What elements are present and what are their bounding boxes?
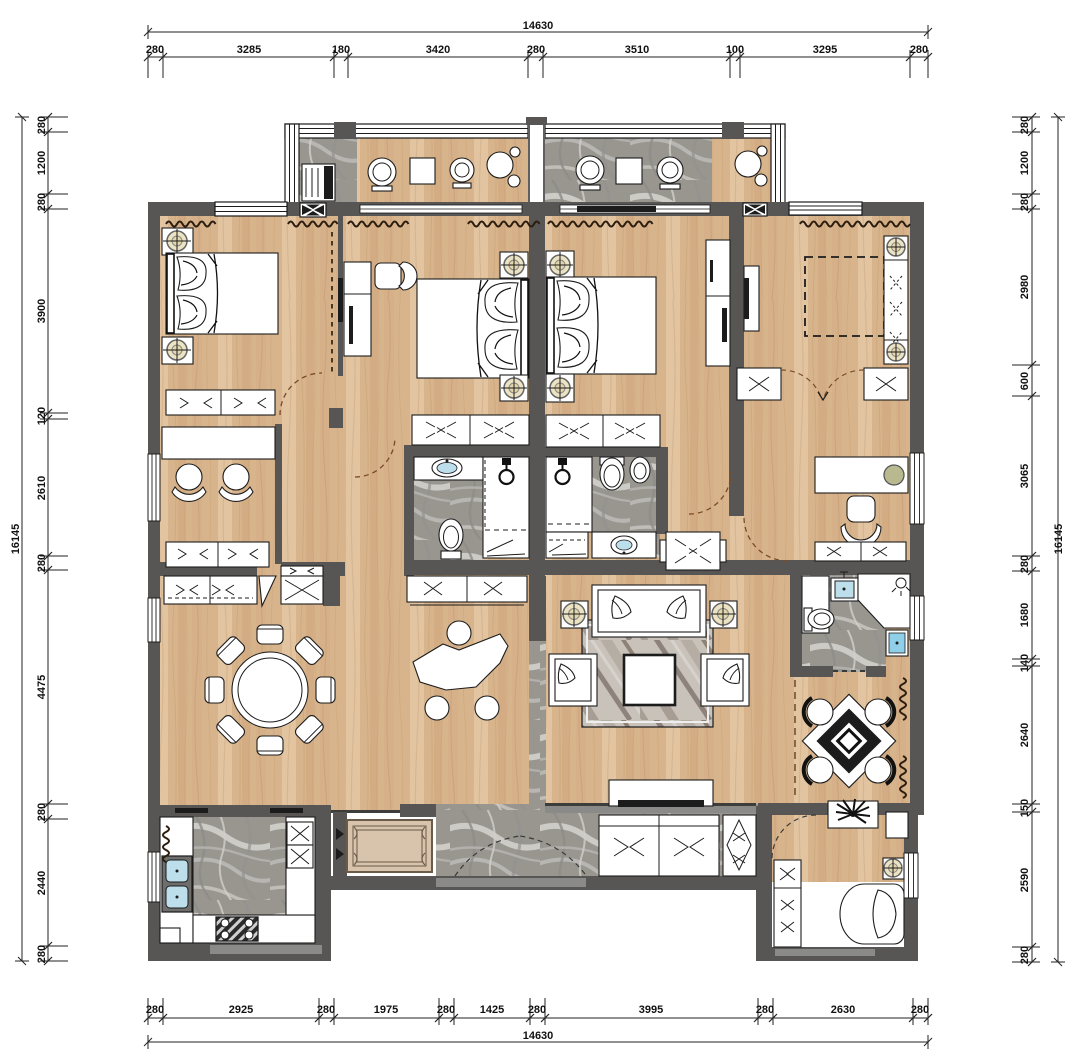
- svg-text:280: 280: [1019, 116, 1031, 134]
- svg-text:3900: 3900: [36, 299, 48, 323]
- svg-text:3065: 3065: [1019, 464, 1031, 488]
- svg-text:1680: 1680: [1019, 603, 1031, 627]
- svg-text:1425: 1425: [480, 1004, 504, 1016]
- svg-text:3295: 3295: [813, 44, 837, 56]
- svg-text:280: 280: [1019, 946, 1031, 964]
- svg-text:1200: 1200: [36, 151, 48, 175]
- svg-text:100: 100: [726, 44, 744, 56]
- svg-text:280: 280: [1019, 555, 1031, 573]
- svg-text:280: 280: [146, 44, 164, 56]
- svg-text:280: 280: [756, 1004, 774, 1016]
- svg-text:14630: 14630: [523, 1030, 554, 1042]
- svg-text:3510: 3510: [625, 44, 649, 56]
- svg-text:2640: 2640: [1019, 723, 1031, 747]
- svg-text:280: 280: [527, 44, 545, 56]
- svg-text:280: 280: [528, 1004, 546, 1016]
- svg-text:3995: 3995: [639, 1004, 663, 1016]
- svg-text:16145: 16145: [10, 524, 22, 555]
- svg-text:280: 280: [317, 1004, 335, 1016]
- svg-text:2440: 2440: [36, 871, 48, 895]
- svg-text:2610: 2610: [36, 476, 48, 500]
- svg-text:1975: 1975: [374, 1004, 398, 1016]
- svg-text:280: 280: [1019, 193, 1031, 211]
- svg-text:2925: 2925: [229, 1004, 253, 1016]
- svg-text:600: 600: [1019, 372, 1031, 390]
- svg-text:280: 280: [36, 554, 48, 572]
- svg-text:16145: 16145: [1053, 524, 1065, 555]
- svg-text:14630: 14630: [523, 20, 554, 32]
- svg-text:120: 120: [36, 407, 48, 425]
- svg-text:1200: 1200: [1019, 151, 1031, 175]
- svg-text:280: 280: [437, 1004, 455, 1016]
- svg-text:2590: 2590: [1019, 868, 1031, 892]
- svg-text:280: 280: [911, 1004, 929, 1016]
- svg-text:4475: 4475: [36, 675, 48, 699]
- svg-text:180: 180: [332, 44, 350, 56]
- svg-text:3420: 3420: [426, 44, 450, 56]
- svg-text:2980: 2980: [1019, 275, 1031, 299]
- svg-text:2630: 2630: [831, 1004, 855, 1016]
- svg-text:3285: 3285: [237, 44, 261, 56]
- svg-text:280: 280: [146, 1004, 164, 1016]
